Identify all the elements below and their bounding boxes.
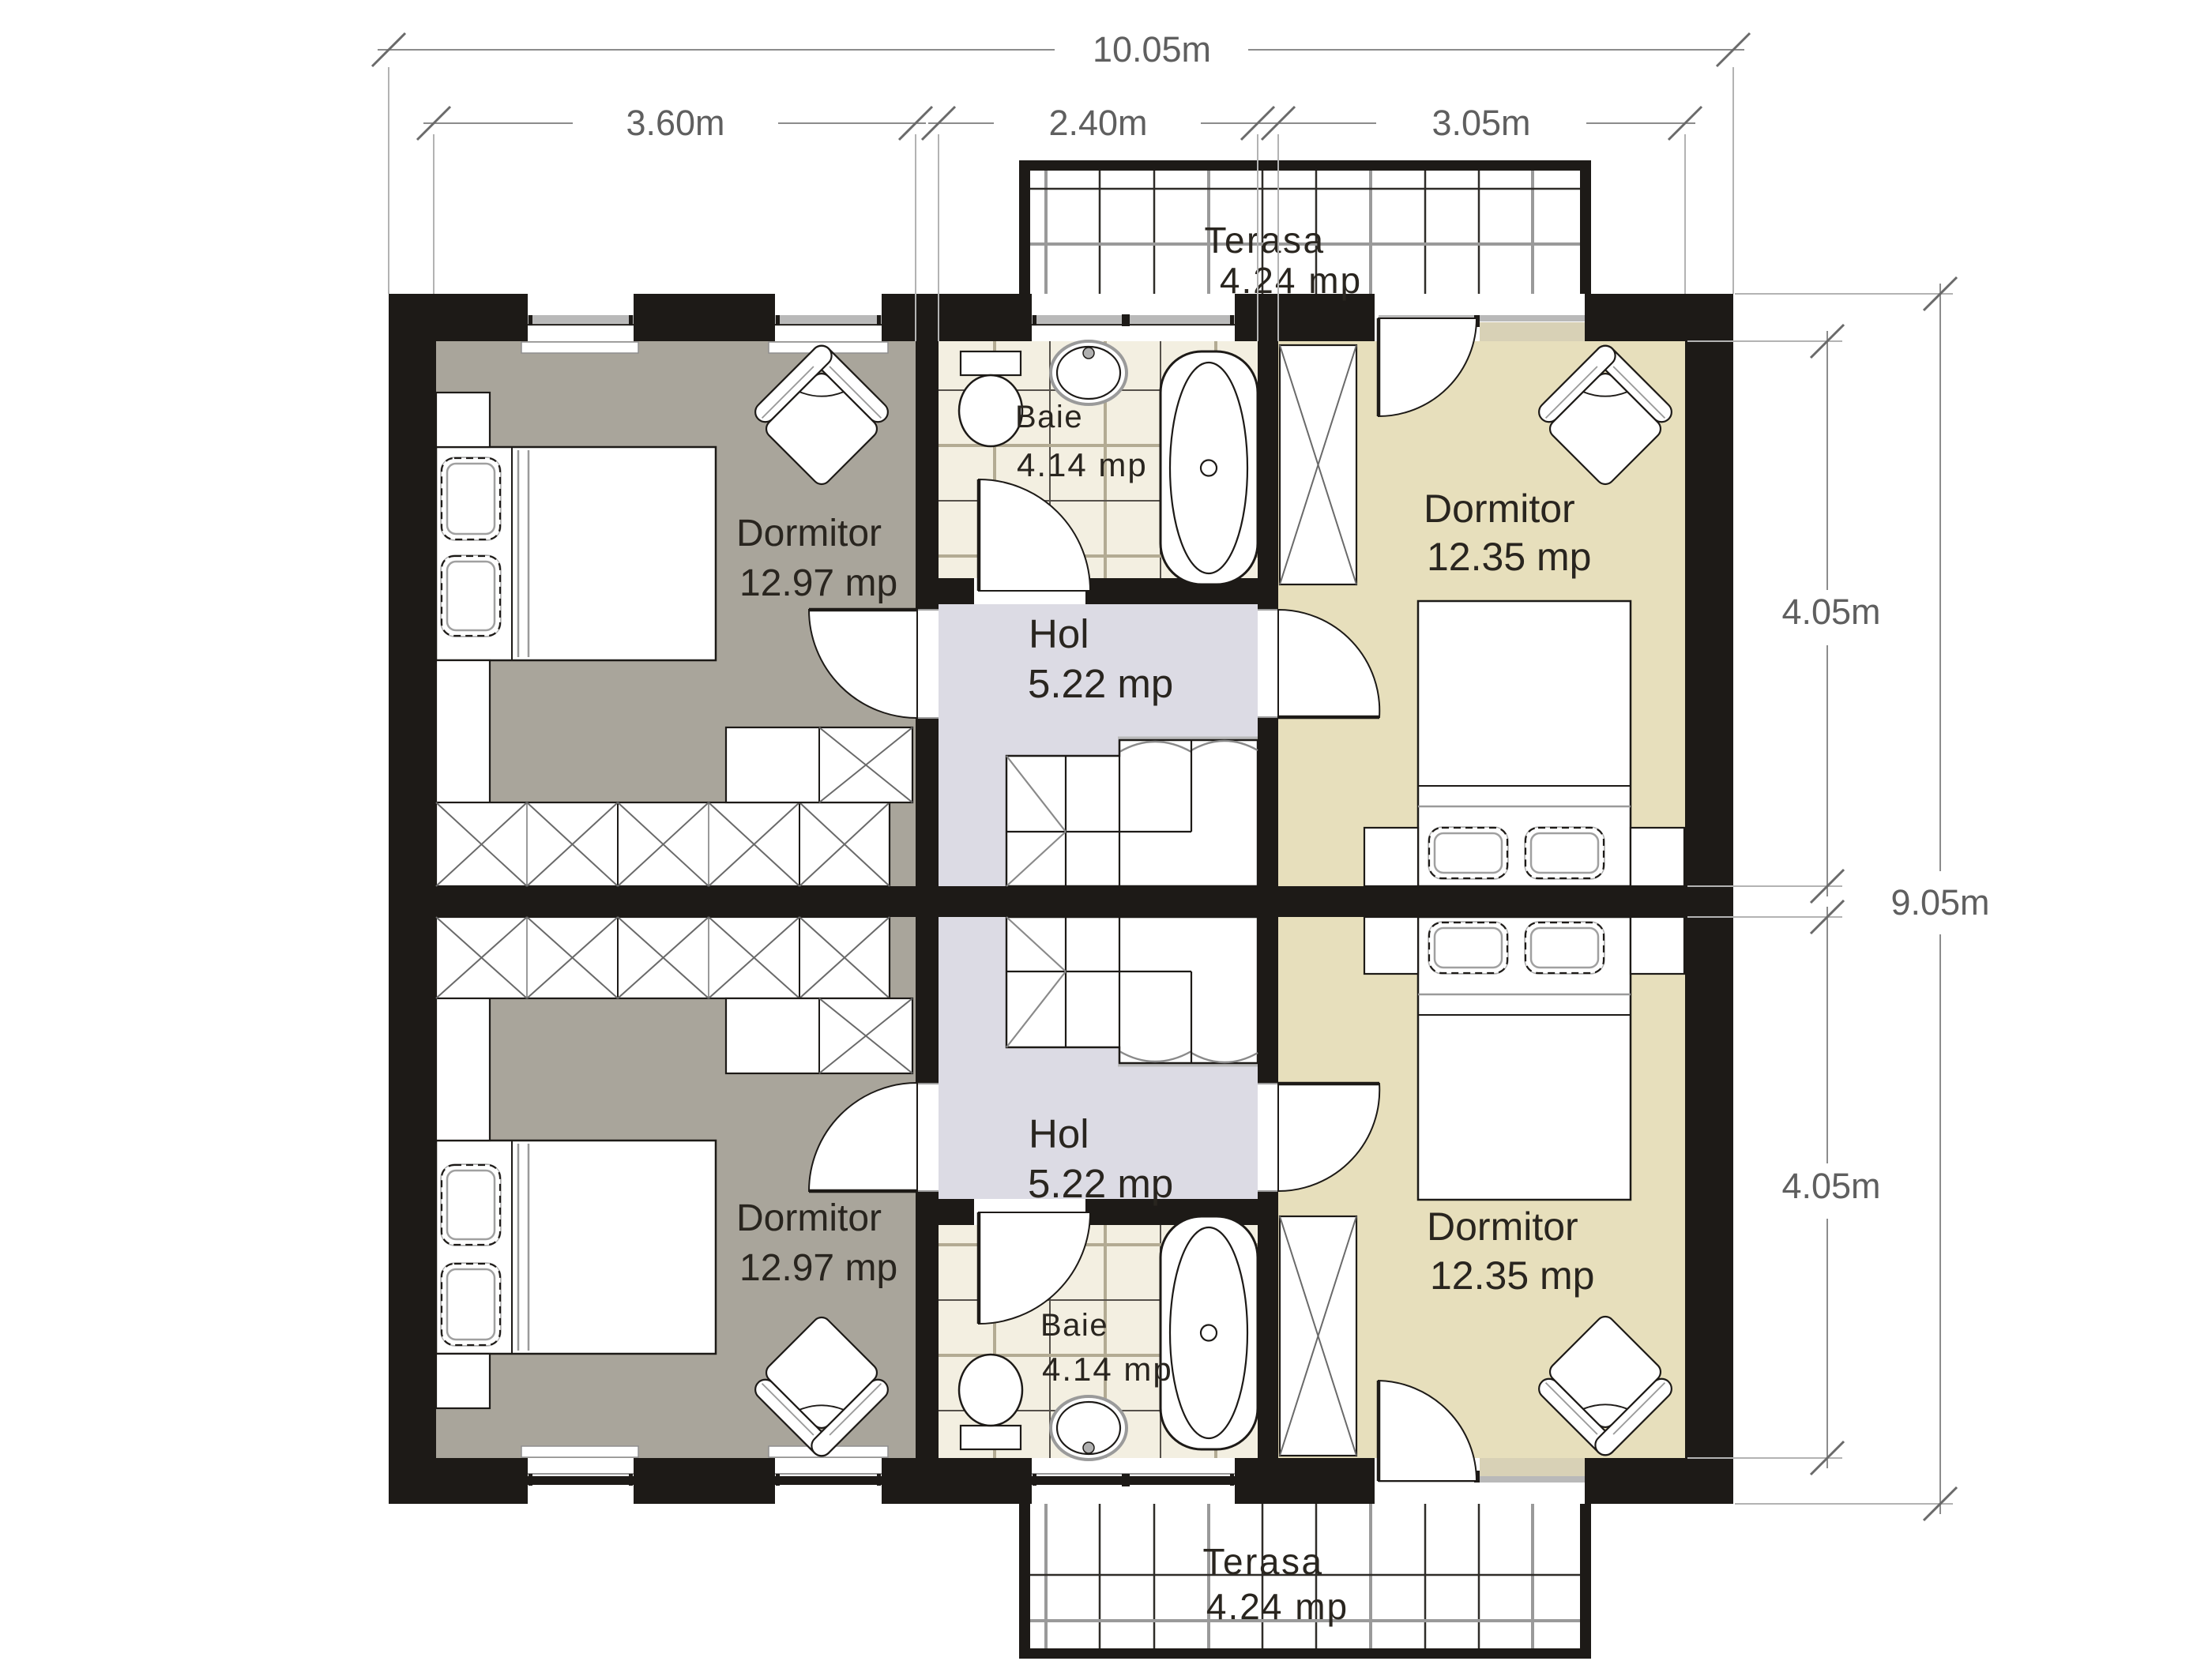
svg-text:Hol: Hol — [1029, 1111, 1089, 1156]
svg-text:Dormitor: Dormitor — [736, 1197, 882, 1239]
svg-text:12.35 mp: 12.35 mp — [1427, 535, 1591, 579]
svg-text:Dormitor: Dormitor — [1424, 487, 1575, 531]
svg-text:4.14 mp: 4.14 mp — [1017, 446, 1148, 483]
svg-text:5.22 mp: 5.22 mp — [1028, 1161, 1173, 1206]
svg-text:Terasa: Terasa — [1204, 220, 1325, 261]
svg-text:Terasa: Terasa — [1202, 1541, 1323, 1582]
svg-text:4.24 mp: 4.24 mp — [1220, 260, 1362, 301]
svg-text:3.60m: 3.60m — [626, 103, 724, 143]
svg-text:Hol: Hol — [1029, 611, 1089, 656]
svg-text:4.14 mp: 4.14 mp — [1042, 1351, 1173, 1388]
svg-text:12.97 mp: 12.97 mp — [739, 562, 897, 604]
svg-text:Dormitor: Dormitor — [1427, 1204, 1578, 1249]
svg-text:Baie: Baie — [1015, 400, 1083, 434]
svg-text:4.24 mp: 4.24 mp — [1206, 1586, 1349, 1627]
svg-text:Baie: Baie — [1040, 1308, 1108, 1343]
svg-text:4.05m: 4.05m — [1781, 1166, 1880, 1206]
svg-text:4.05m: 4.05m — [1781, 592, 1880, 632]
svg-text:12.35 mp: 12.35 mp — [1430, 1253, 1594, 1298]
svg-text:12.97 mp: 12.97 mp — [739, 1247, 897, 1289]
svg-text:3.05m: 3.05m — [1431, 103, 1530, 143]
svg-text:5.22 mp: 5.22 mp — [1028, 661, 1173, 706]
svg-text:9.05m: 9.05m — [1890, 882, 1989, 923]
svg-text:2.40m: 2.40m — [1048, 103, 1147, 143]
svg-text:10.05m: 10.05m — [1093, 29, 1211, 70]
svg-text:Dormitor: Dormitor — [736, 513, 882, 554]
